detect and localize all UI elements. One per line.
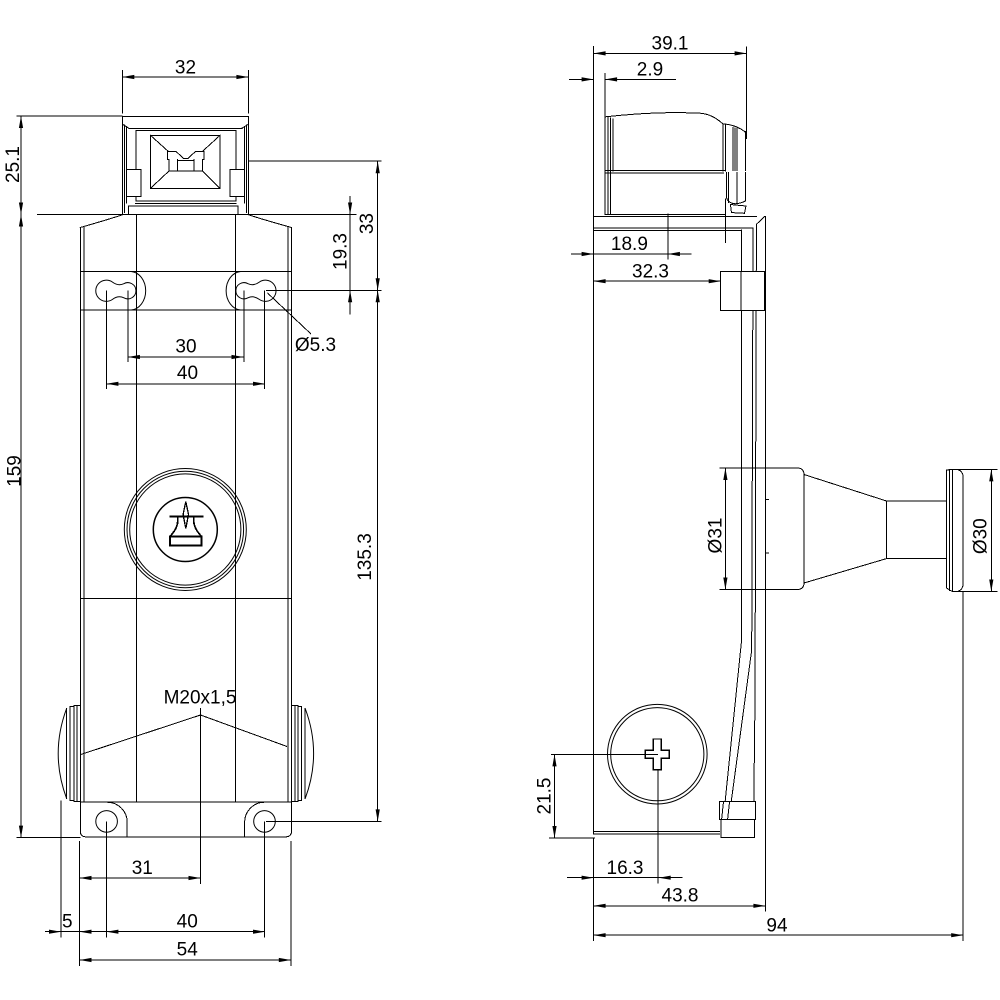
svg-text:135.3: 135.3 (355, 533, 376, 581)
svg-text:M20x1,5: M20x1,5 (164, 688, 237, 709)
svg-text:32.3: 32.3 (632, 262, 669, 283)
svg-text:30: 30 (175, 337, 196, 358)
svg-text:Ø30: Ø30 (970, 518, 991, 554)
svg-text:31: 31 (132, 858, 153, 879)
svg-text:32: 32 (175, 58, 196, 79)
svg-text:Ø5.3: Ø5.3 (295, 335, 336, 356)
svg-text:25.1: 25.1 (3, 146, 24, 183)
svg-text:19.3: 19.3 (331, 233, 352, 270)
svg-text:21.5: 21.5 (535, 778, 556, 815)
svg-text:43.8: 43.8 (662, 886, 699, 907)
svg-text:2.9: 2.9 (637, 60, 663, 81)
svg-text:40: 40 (177, 363, 198, 384)
svg-text:Ø31: Ø31 (705, 518, 726, 554)
svg-text:159: 159 (5, 455, 26, 487)
svg-text:18.9: 18.9 (611, 234, 648, 255)
svg-text:16.3: 16.3 (607, 858, 644, 879)
svg-text:33: 33 (357, 213, 378, 234)
svg-text:5: 5 (62, 912, 73, 933)
svg-text:54: 54 (177, 939, 199, 960)
svg-text:39.1: 39.1 (652, 34, 689, 55)
svg-text:94: 94 (766, 916, 788, 937)
svg-text:40: 40 (177, 912, 198, 933)
